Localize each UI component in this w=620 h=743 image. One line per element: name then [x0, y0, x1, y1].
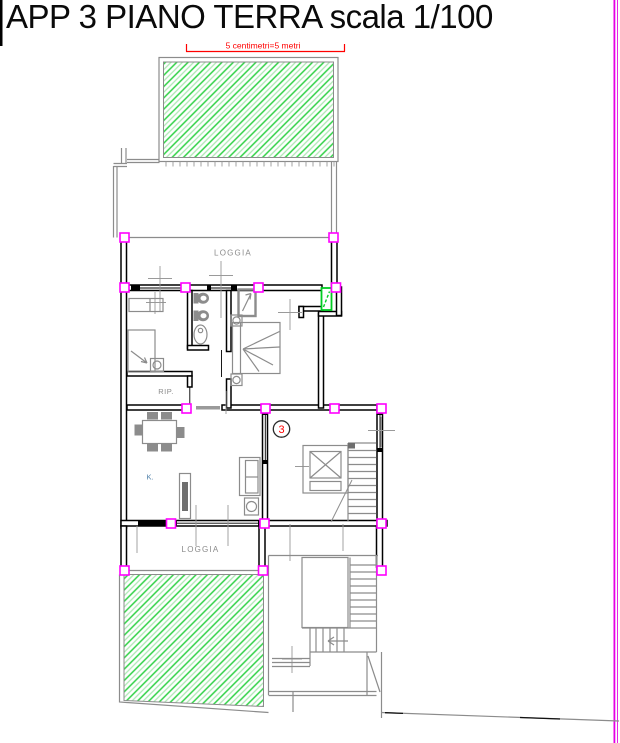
internal-stairs: [348, 443, 377, 521]
marker: [377, 519, 386, 528]
property-boundary-right: [614, 0, 619, 743]
stair-direction-arrow: [328, 637, 348, 645]
wardrobe: [129, 299, 163, 312]
marker: [261, 404, 270, 413]
floor-plan-drawing: 5 centimetri=5 metri LOGGIA: [0, 0, 620, 743]
marker: [167, 519, 176, 528]
marker: [120, 566, 129, 575]
apartment-walls: [121, 285, 387, 529]
bedroom-single-furniture: [128, 299, 164, 373]
marker: [377, 566, 386, 575]
marker: [259, 566, 268, 575]
entrance-door-green: [322, 288, 332, 310]
marker: [329, 233, 338, 242]
kitchen-living-furniture: [135, 412, 261, 519]
marker: [182, 404, 191, 413]
loggia-upper-column-right: [332, 238, 338, 288]
garden-fence-ticks: [166, 162, 334, 167]
bedroom-double-furniture: [231, 315, 280, 386]
marker: [377, 404, 386, 413]
storage-room-label: RIP.: [158, 387, 174, 396]
loggia-upper: LOGGIA: [121, 238, 337, 288]
dining-table: [143, 421, 177, 444]
scale-bar-label: 5 centimetri=5 metri: [226, 41, 301, 51]
marker: [120, 233, 129, 242]
loggia-upper-label: LOGGIA: [214, 249, 252, 258]
stair-landing: [302, 558, 348, 628]
garden-top: [159, 58, 338, 167]
marker: [120, 283, 129, 292]
marker: [332, 283, 341, 292]
marker: [181, 283, 190, 292]
floor-plan-page: APP 3 PIANO TERRA scala 1/100 5 centimet…: [0, 0, 620, 743]
property-boundary-bottom: [381, 713, 619, 722]
kitchen-label: K.: [146, 473, 153, 482]
bathroom-fixtures: [194, 290, 256, 345]
garden-top-hatch: [164, 62, 334, 158]
marker: [330, 404, 339, 413]
external-staircase: [269, 556, 382, 719]
stairwell: [303, 443, 377, 522]
scale-bar: 5 centimetri=5 metri: [186, 41, 345, 52]
door-threshold: [196, 406, 220, 410]
unit-number-badge: 3: [273, 421, 289, 437]
loggia-lower-label: LOGGIA: [182, 545, 220, 554]
marker: [260, 519, 269, 528]
unit-number: 3: [278, 424, 284, 436]
door-leaves: [190, 350, 222, 405]
garden-bottom: [120, 575, 269, 713]
loggia-upper-column-left: [121, 238, 127, 288]
marker: [254, 283, 263, 292]
page-edge-tick: [0, 0, 3, 46]
garden-bottom-hatch: [124, 575, 264, 707]
